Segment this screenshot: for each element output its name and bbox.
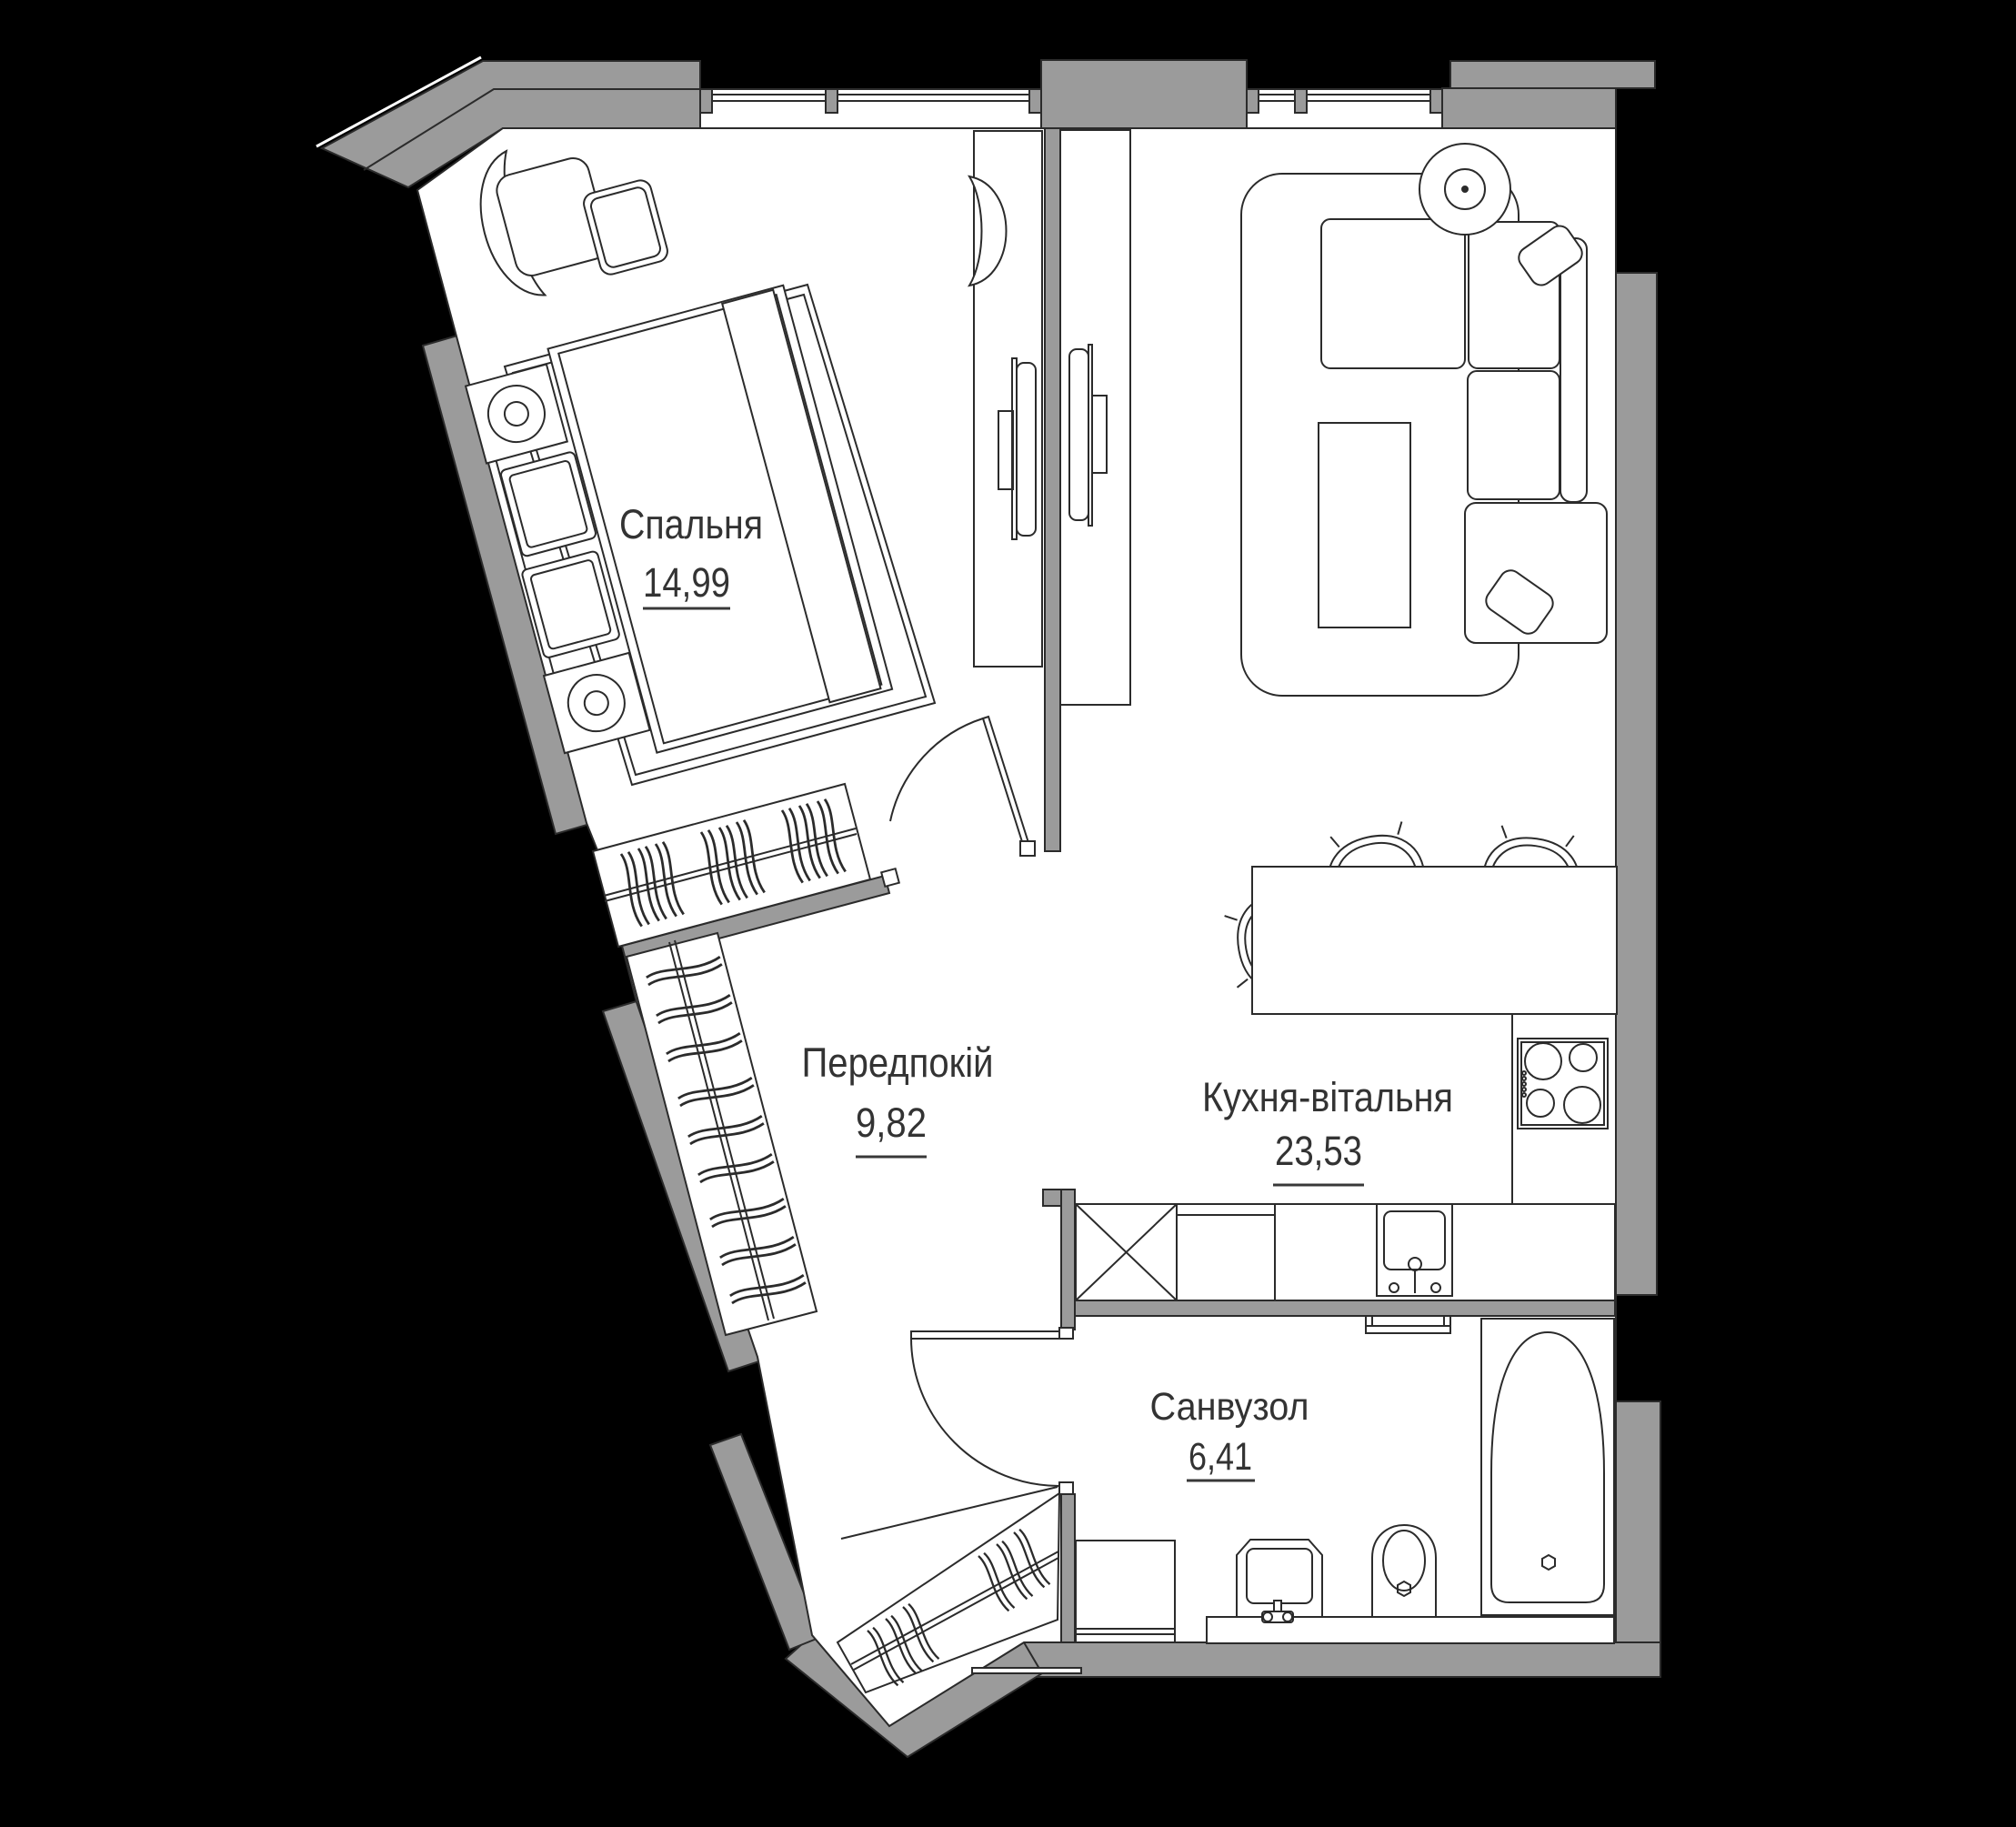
svg-text:23,53: 23,53	[1275, 1128, 1362, 1174]
svg-text:Санвузол: Санвузол	[1150, 1385, 1309, 1429]
svg-text:9,82: 9,82	[856, 1099, 927, 1146]
svg-text:6,41: 6,41	[1189, 1435, 1252, 1479]
svg-text:Спальня: Спальня	[619, 501, 763, 547]
svg-text:Кухня-вітальня: Кухня-вітальня	[1202, 1074, 1453, 1120]
svg-text:14,99: 14,99	[643, 559, 730, 606]
svg-text:Передпокій: Передпокій	[802, 1039, 994, 1086]
